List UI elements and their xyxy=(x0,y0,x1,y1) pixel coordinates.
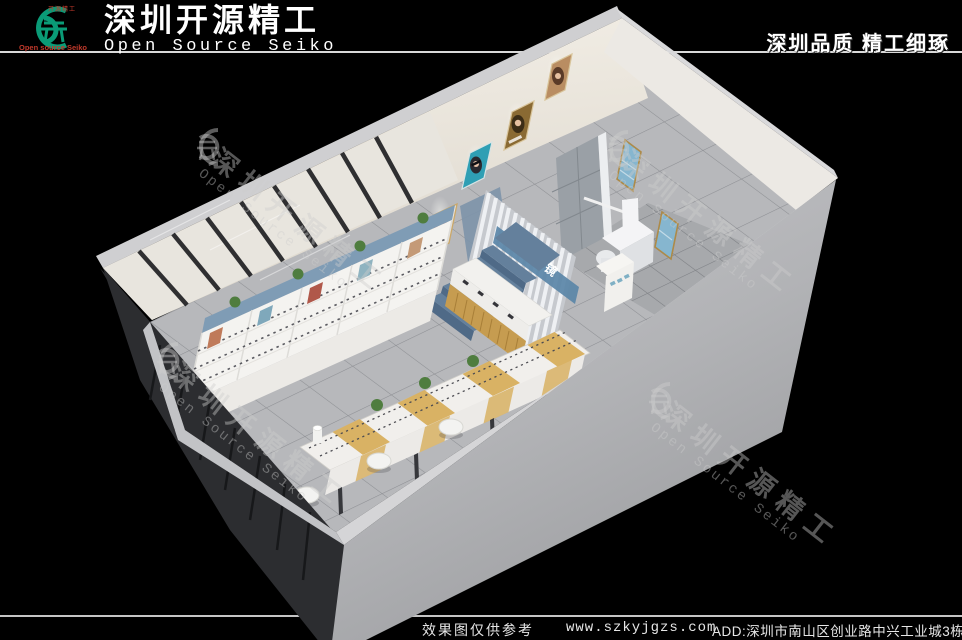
store-render-3d: 优视眼镜 xyxy=(0,0,962,640)
presentation-board: 优视眼镜 xyxy=(0,0,962,640)
footer: 效果图仅供参考 www.szkyjgzs.com ADD:深圳市南山区创业路中兴… xyxy=(0,618,962,640)
logo-top-text: 开源精工 xyxy=(32,4,92,13)
cup-stack xyxy=(313,426,322,444)
logo-bottom-text: Open source Seiko xyxy=(8,43,98,52)
footer-address: ADD:深圳市南山区创业路中兴工业城3栋 xyxy=(712,620,962,640)
brand-title: 深圳开源精工 Open Source Seiko xyxy=(104,4,337,56)
brand-slogan: 深圳品质 精工细琢 xyxy=(766,27,950,56)
footer-disclaimer: 效果图仅供参考 xyxy=(422,620,534,640)
brand-logo: 开源精工 Open source Seiko xyxy=(8,2,98,52)
brand-title-en: Open Source Seiko xyxy=(104,37,337,56)
brand-title-cn: 深圳开源精工 xyxy=(104,4,337,36)
header: 开源精工 Open source Seiko 深圳开源精工 Open Sourc… xyxy=(0,0,962,54)
footer-website: www.szkyjgzs.com xyxy=(566,620,716,636)
